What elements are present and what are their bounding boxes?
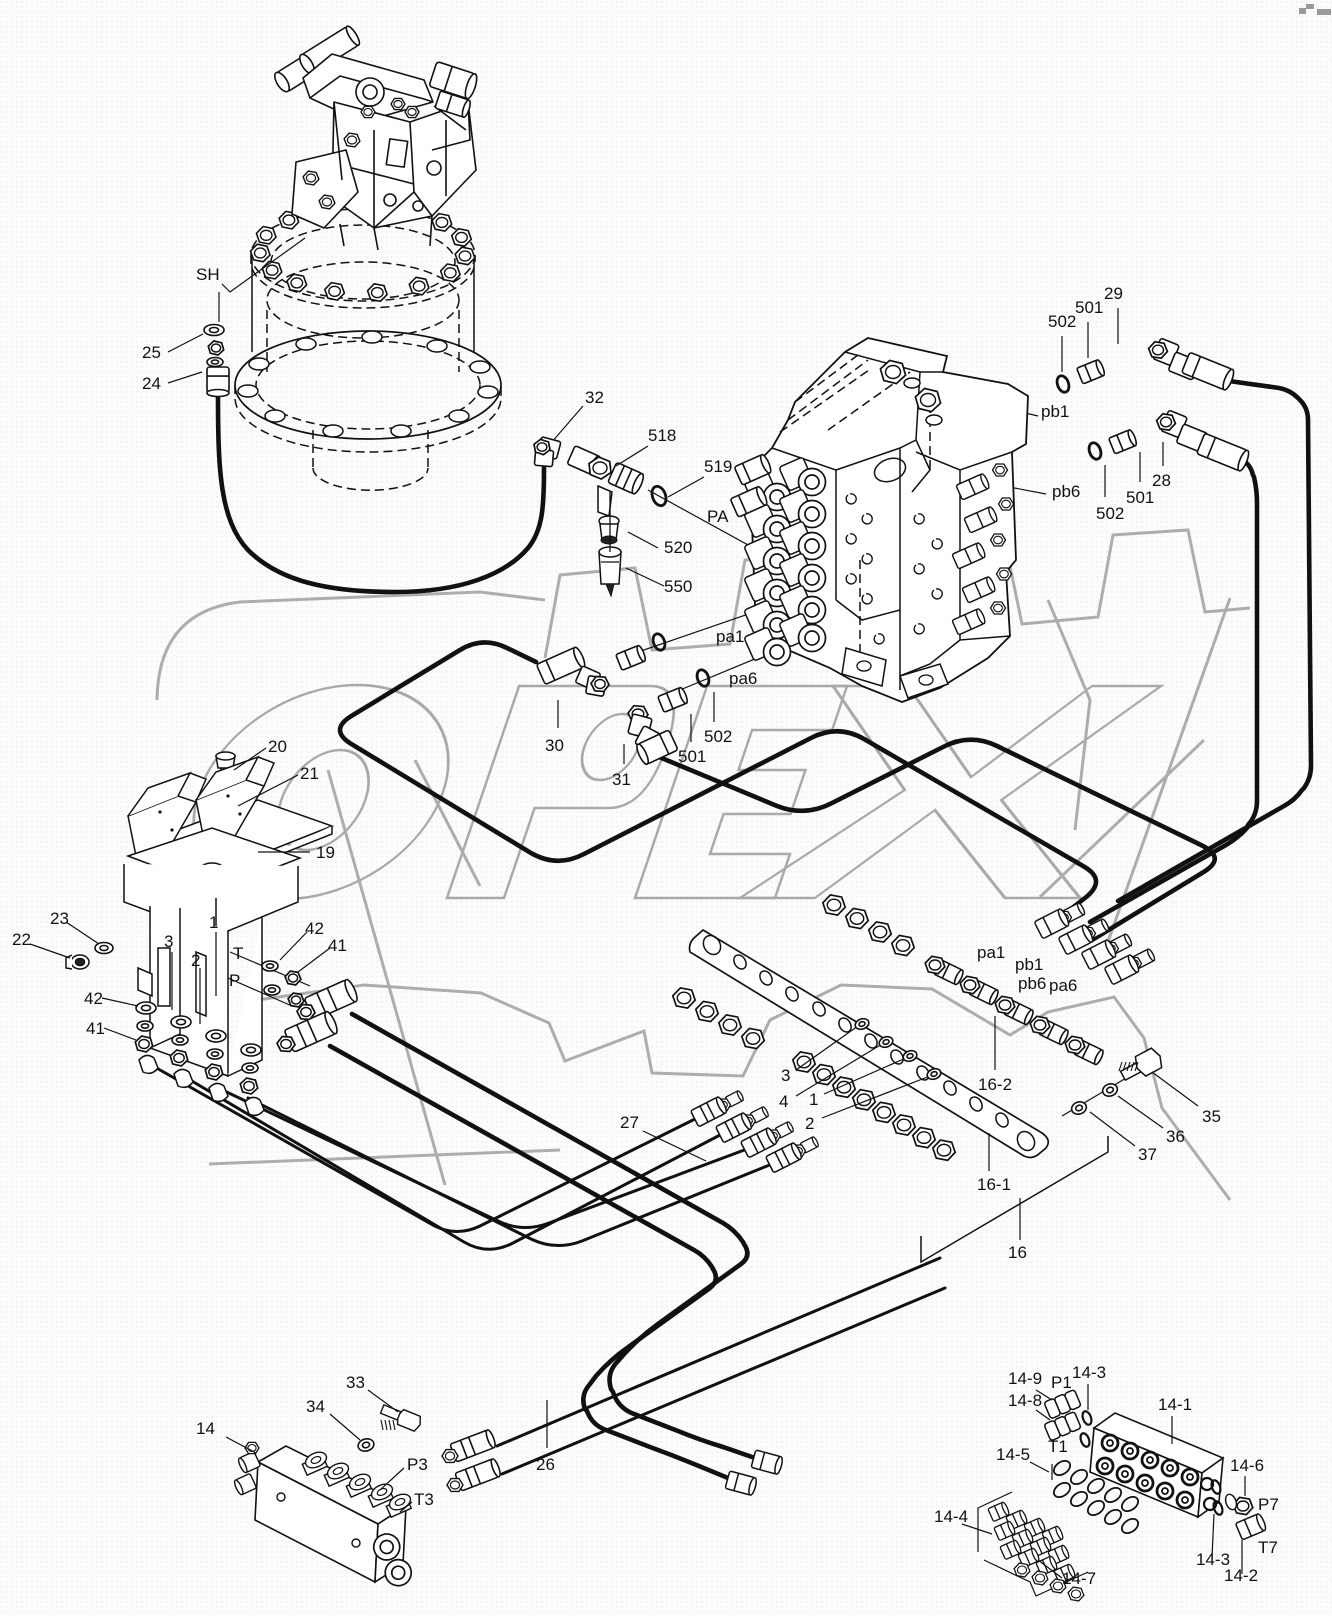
svg-text:26: 26 bbox=[536, 1455, 555, 1474]
svg-text:3: 3 bbox=[164, 932, 173, 951]
svg-text:25: 25 bbox=[142, 343, 161, 362]
svg-text:520: 520 bbox=[664, 538, 692, 557]
svg-text:35: 35 bbox=[1202, 1107, 1221, 1126]
svg-text:502: 502 bbox=[1048, 312, 1076, 331]
svg-text:1: 1 bbox=[209, 913, 218, 932]
svg-text:31: 31 bbox=[612, 770, 631, 789]
svg-text:30: 30 bbox=[545, 736, 564, 755]
svg-text:28: 28 bbox=[1152, 471, 1171, 490]
svg-text:P1: P1 bbox=[1051, 1373, 1072, 1392]
svg-text:PA: PA bbox=[707, 507, 729, 526]
svg-text:P: P bbox=[229, 971, 240, 990]
svg-text:36: 36 bbox=[1166, 1127, 1185, 1146]
svg-text:27: 27 bbox=[620, 1113, 639, 1132]
svg-text:14-8: 14-8 bbox=[1008, 1391, 1042, 1410]
svg-text:pa6: pa6 bbox=[1049, 976, 1077, 995]
svg-text:pa1: pa1 bbox=[977, 943, 1005, 962]
svg-text:T3: T3 bbox=[414, 1490, 434, 1509]
svg-text:T7: T7 bbox=[1258, 1538, 1278, 1557]
svg-text:pb6: pb6 bbox=[1052, 482, 1080, 501]
svg-text:501: 501 bbox=[678, 747, 706, 766]
svg-text:29: 29 bbox=[1104, 284, 1123, 303]
svg-text:P7: P7 bbox=[1258, 1495, 1279, 1514]
svg-text:14-9: 14-9 bbox=[1008, 1369, 1042, 1388]
svg-text:16-1: 16-1 bbox=[977, 1175, 1011, 1194]
svg-text:14-7: 14-7 bbox=[1062, 1569, 1096, 1588]
svg-text:16: 16 bbox=[1008, 1243, 1027, 1262]
svg-text:24: 24 bbox=[142, 374, 161, 393]
svg-text:pb1: pb1 bbox=[1041, 402, 1069, 421]
svg-text:20: 20 bbox=[268, 737, 287, 756]
svg-text:SH: SH bbox=[196, 265, 220, 284]
svg-text:501: 501 bbox=[1075, 298, 1103, 317]
svg-text:14-4: 14-4 bbox=[934, 1507, 968, 1526]
svg-text:P3: P3 bbox=[407, 1455, 428, 1474]
svg-text:pb1: pb1 bbox=[1015, 955, 1043, 974]
svg-text:34: 34 bbox=[306, 1397, 325, 1416]
svg-text:33: 33 bbox=[346, 1373, 365, 1392]
svg-text:22: 22 bbox=[12, 930, 31, 949]
svg-text:32: 32 bbox=[585, 388, 604, 407]
svg-text:14-6: 14-6 bbox=[1230, 1456, 1264, 1475]
svg-text:3: 3 bbox=[781, 1066, 790, 1085]
svg-text:2: 2 bbox=[191, 951, 200, 970]
svg-text:16-2: 16-2 bbox=[978, 1075, 1012, 1094]
svg-text:14-1: 14-1 bbox=[1158, 1395, 1192, 1414]
svg-text:14: 14 bbox=[196, 1419, 215, 1438]
svg-text:550: 550 bbox=[664, 577, 692, 596]
svg-text:pb6: pb6 bbox=[1018, 974, 1046, 993]
svg-text:pa6: pa6 bbox=[729, 669, 757, 688]
svg-text:14-3: 14-3 bbox=[1072, 1363, 1106, 1382]
svg-text:T: T bbox=[233, 944, 243, 963]
svg-text:42: 42 bbox=[305, 919, 324, 938]
svg-text:4: 4 bbox=[779, 1092, 788, 1111]
svg-text:23: 23 bbox=[50, 909, 69, 928]
svg-text:41: 41 bbox=[86, 1019, 105, 1038]
svg-text:21: 21 bbox=[300, 764, 319, 783]
svg-text:pa1: pa1 bbox=[716, 627, 744, 646]
svg-text:1: 1 bbox=[809, 1090, 818, 1109]
svg-text:2: 2 bbox=[805, 1114, 814, 1133]
svg-text:14-5: 14-5 bbox=[996, 1445, 1030, 1464]
svg-text:41: 41 bbox=[328, 936, 347, 955]
svg-text:501: 501 bbox=[1126, 488, 1154, 507]
svg-text:42: 42 bbox=[84, 989, 103, 1008]
svg-text:502: 502 bbox=[704, 727, 732, 746]
svg-text:519: 519 bbox=[704, 457, 732, 476]
svg-text:37: 37 bbox=[1138, 1145, 1157, 1164]
svg-text:14-2: 14-2 bbox=[1224, 1566, 1258, 1585]
svg-text:T1: T1 bbox=[1048, 1437, 1068, 1456]
svg-text:19: 19 bbox=[316, 843, 335, 862]
svg-text:518: 518 bbox=[648, 426, 676, 445]
svg-text:502: 502 bbox=[1096, 504, 1124, 523]
